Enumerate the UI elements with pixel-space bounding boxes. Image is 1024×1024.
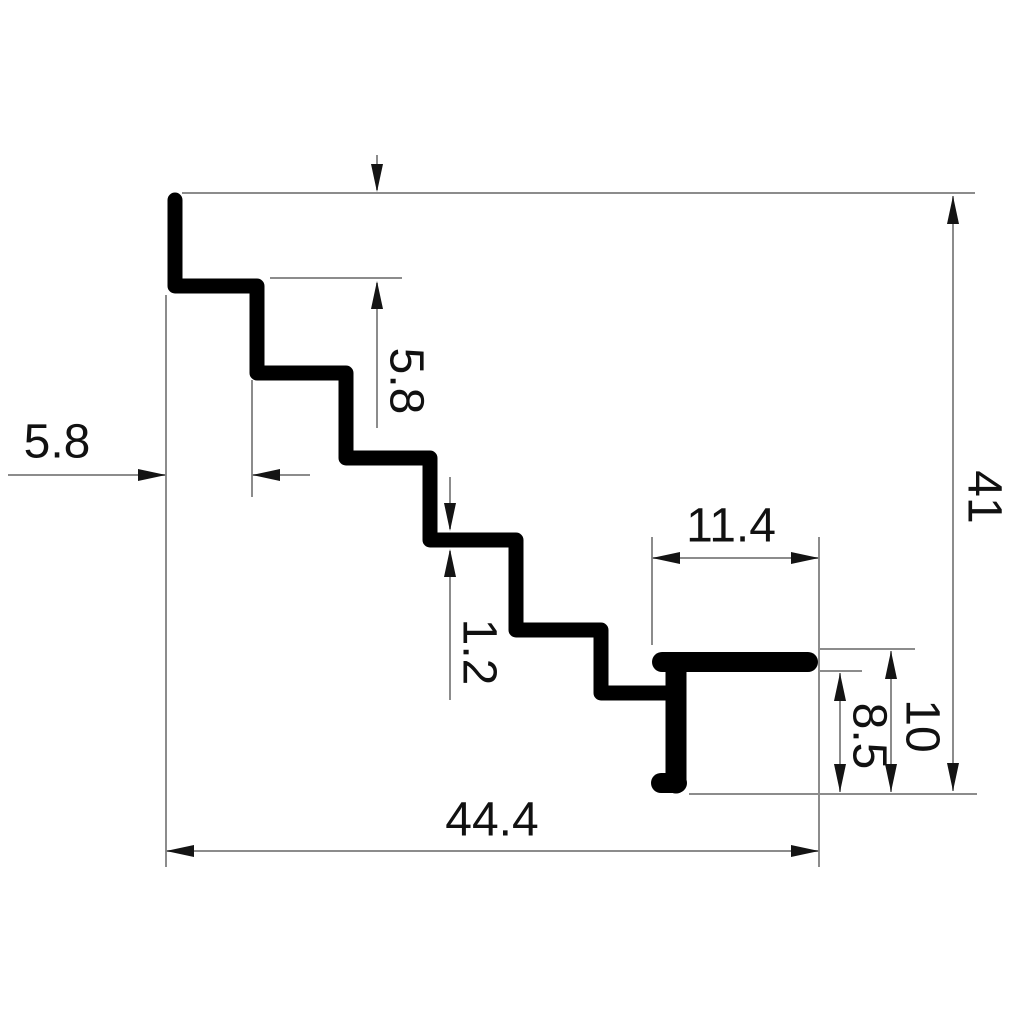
stair-profile-drawing: 5.85.81.211.441108.544.4	[0, 0, 1024, 1024]
technical-drawing-page: 5.85.81.211.441108.544.4	[0, 0, 1024, 1024]
arrowhead-total-width-left	[166, 845, 194, 857]
profile-staircase	[175, 200, 667, 693]
dim-label-total-height: 41	[958, 470, 1011, 523]
arrowhead-end-height-top	[885, 651, 897, 679]
dim-label-step-rise: 5.8	[380, 348, 433, 415]
arrowhead-total-height-bottom	[947, 763, 959, 791]
arrowhead-total-width-right	[791, 845, 819, 857]
arrowhead-flange-width-right	[791, 552, 819, 564]
dim-label-step-depth: 5.8	[24, 416, 91, 469]
arrowhead-total-height-top	[947, 196, 959, 224]
arrowhead-thickness-top	[444, 503, 456, 531]
arrowhead-rise-top	[371, 164, 383, 192]
dim-label-stem-height: 8.5	[843, 703, 896, 770]
dim-label-wall-thickness: 1.2	[453, 619, 506, 686]
arrowhead-depth-left	[138, 469, 166, 481]
arrowhead-flange-width-left	[652, 552, 680, 564]
dim-label-flange-width: 11.4	[686, 500, 776, 553]
arrowhead-depth-right	[252, 469, 280, 481]
arrowhead-thickness-bottom	[444, 549, 456, 577]
arrowhead-rise-bottom	[371, 281, 383, 309]
dim-label-end-height: 10	[896, 699, 949, 752]
arrowhead-stem-height-top	[834, 673, 846, 701]
dim-label-total-width: 44.4	[445, 794, 538, 847]
